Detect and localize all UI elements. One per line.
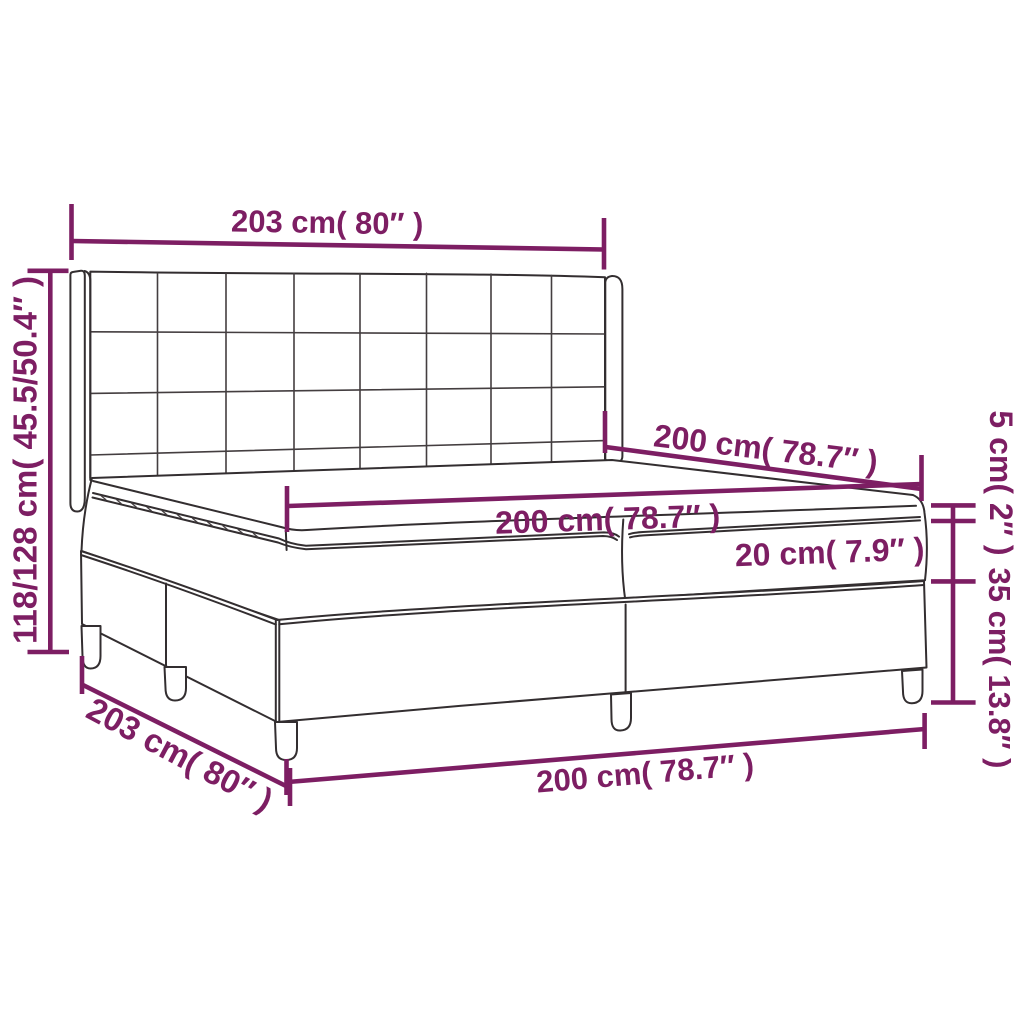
svg-text:200 cm( 78.7″ ): 200 cm( 78.7″ ) <box>494 497 720 540</box>
svg-text:20 cm( 7.9″ ): 20 cm( 7.9″ ) <box>734 531 925 574</box>
svg-text:118/128 cm( 45.5/50.4″ ): 118/128 cm( 45.5/50.4″ ) <box>7 276 44 644</box>
svg-text:203 cm( 80″ ): 203 cm( 80″ ) <box>231 203 424 241</box>
svg-text:35 cm( 13.8″ ): 35 cm( 13.8″ ) <box>982 568 1017 769</box>
svg-text:5 cm( 2″ ): 5 cm( 2″ ) <box>983 410 1019 555</box>
